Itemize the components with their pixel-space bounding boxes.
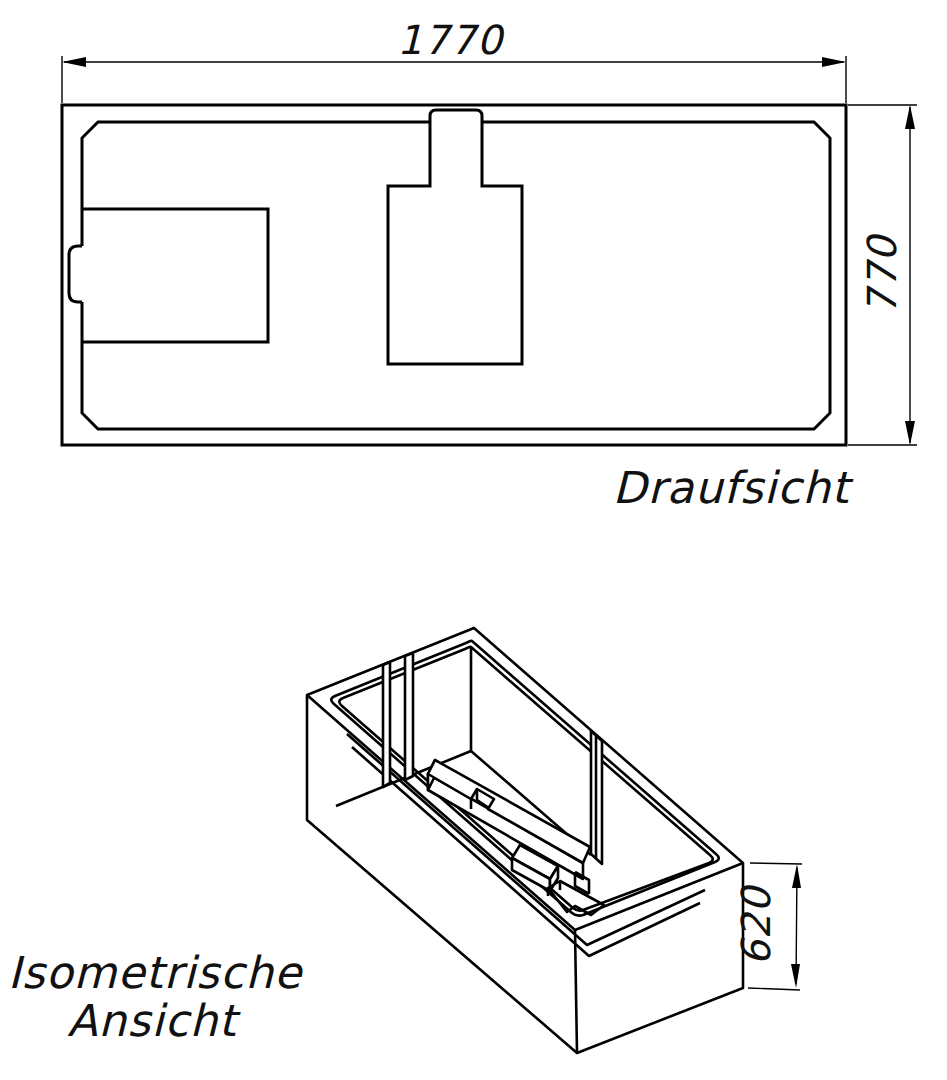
top-view-outer-outline [62, 105, 846, 445]
top-view-inner-outline [82, 122, 830, 429]
top-view-title: Draufsicht [613, 462, 855, 513]
iso-shelf-top-face [428, 760, 590, 863]
iso-view-drawing: 620 Isometrische Ansicht [8, 628, 802, 1053]
dim-depth-arrow-bottom [905, 421, 915, 445]
technical-drawing-sheet: 1770 770 Draufsicht [0, 0, 947, 1080]
top-view-left-bump [69, 246, 82, 302]
iso-left-partition-b [405, 653, 413, 780]
dim-depth-label: 770 [859, 233, 905, 315]
dim-width-arrow-right [822, 57, 846, 67]
dim-height-arrow-bottom [791, 964, 800, 988]
iso-view-title-line1: Isometrische [8, 947, 304, 998]
bathtub-carrier-drawing: 1770 770 Draufsicht [0, 0, 947, 1080]
top-view-drawing: 1770 770 Draufsicht [62, 17, 917, 513]
iso-view-title-line2: Ansicht [67, 995, 241, 1046]
top-view-center-pocket [388, 110, 522, 364]
iso-center-shelf [428, 760, 590, 879]
dim-width-arrow-left [62, 57, 86, 67]
dim-width-label: 1770 [397, 17, 505, 63]
dim-depth-arrow-top [905, 105, 915, 129]
iso-left-partition-a [383, 662, 390, 787]
dim-depth: 770 [848, 105, 917, 445]
dim-height-label: 620 [733, 884, 779, 966]
top-view-left-pocket [82, 209, 268, 342]
dim-height-arrow-top [792, 864, 801, 888]
dim-width: 1770 [62, 17, 846, 103]
